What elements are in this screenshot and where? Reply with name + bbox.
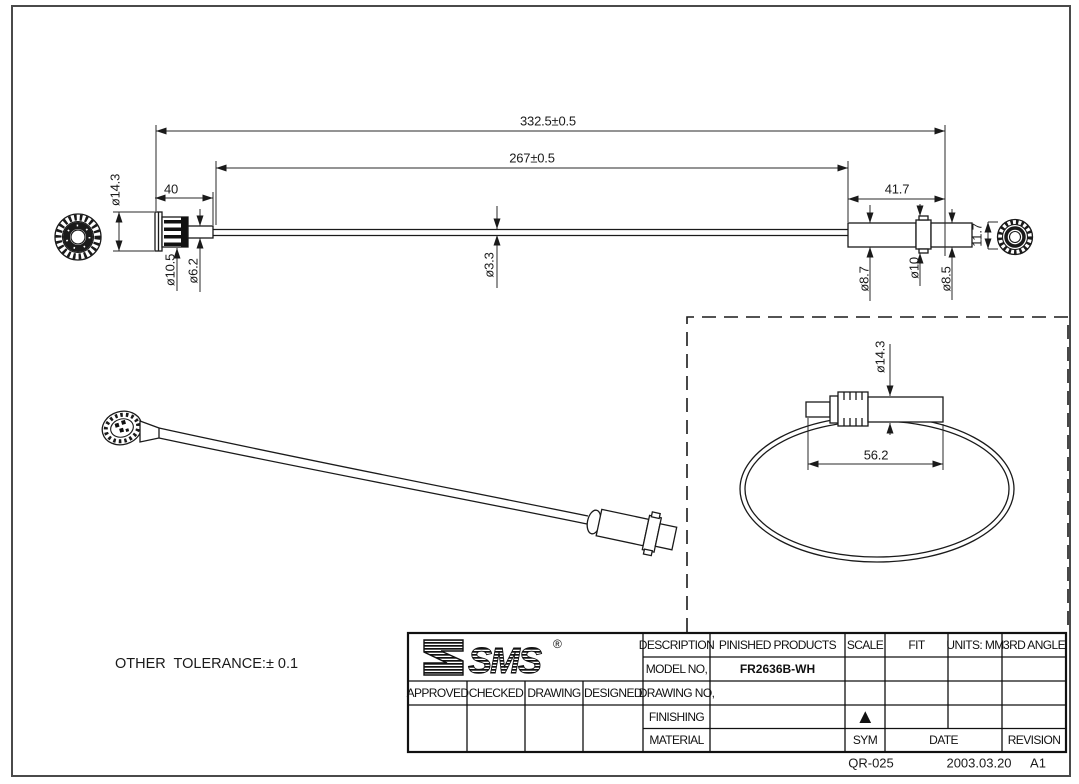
dim-left-barrel-dia: ø6.2 xyxy=(186,258,201,283)
iso-right-connector xyxy=(583,499,679,559)
tolerance-note: OTHER TOLERANCE:± 0.1 xyxy=(115,656,298,672)
cell-angle-label: 3RD ANGLE xyxy=(1002,633,1066,657)
dim-detail-flange-dia: ø14.3 xyxy=(873,341,888,373)
company-logo: SMS ® xyxy=(424,637,562,681)
footer-date: 2003.03.20 xyxy=(946,756,1011,771)
cell-approved-label: APPROVED xyxy=(408,681,467,705)
cell-finishing-label: FINISHING xyxy=(643,705,710,728)
cell-sym-label: SYM xyxy=(845,728,885,752)
dim-cable-dia: ø3.3 xyxy=(482,252,497,277)
cell-description-label: DESCRIPTION xyxy=(643,633,710,657)
cable-side-view xyxy=(213,230,848,236)
cell-material-label: MATERIAL xyxy=(643,728,710,752)
dim-left-connector-length: 40 xyxy=(164,182,178,197)
cell-drawing-no-label: DRAWING NO, xyxy=(643,681,710,705)
footer-revision: A1 xyxy=(1030,756,1046,771)
cable-loop-outer xyxy=(740,416,1014,562)
dim-left-flange-dia: ø14.3 xyxy=(108,174,123,206)
right-connector-end-view xyxy=(998,220,1033,255)
iso-cable-bottom xyxy=(159,438,587,524)
dim-right-barrel-dia: ø8.7 xyxy=(857,266,872,291)
cell-designed-label: DESIGNED xyxy=(583,681,643,705)
drawing-sheet: SMS ® 332.5±0.5 267±0.5 40 41.7 ø14.3 ø1… xyxy=(0,0,1079,784)
dim-right-end-height: 11.7 xyxy=(970,223,985,247)
iso-neck xyxy=(140,421,159,442)
cable-loop-inner xyxy=(745,421,1009,557)
cell-scale-label: SCALE xyxy=(845,633,885,657)
cell-sym-mark: ▲ xyxy=(845,705,885,728)
logo-text: SMS xyxy=(468,640,542,681)
cell-checked-label: CHECKED xyxy=(467,681,525,705)
cell-description-value: PINISHED PRODUCTS xyxy=(710,633,845,657)
cell-date-label: DATE xyxy=(885,728,1002,752)
cell-model-value: FR2636B-WH xyxy=(710,657,845,681)
footer-doc-no: QR-025 xyxy=(848,756,894,771)
logo-mark xyxy=(424,640,463,675)
isometric-view xyxy=(98,407,679,560)
dim-cable-length: 267±0.5 xyxy=(509,151,555,166)
top-view xyxy=(55,212,1033,260)
dim-detail-length: 56.2 xyxy=(864,448,889,463)
right-connector-side-view xyxy=(848,216,972,253)
dim-left-knurl-dia: ø10.5 xyxy=(163,254,178,286)
dim-right-collar-dia: ø10 xyxy=(907,257,922,279)
iso-left-connector xyxy=(98,407,146,450)
left-connector-end-view xyxy=(55,214,101,260)
dim-overall-length: 332.5±0.5 xyxy=(520,114,576,129)
iso-cable-top xyxy=(159,428,588,516)
cell-drawing-label: DRAWING xyxy=(525,681,583,705)
dim-right-connector-length: 41.7 xyxy=(885,182,910,197)
cell-model-label: MODEL NO, xyxy=(643,657,710,681)
cell-units-label: UNITS: MM xyxy=(948,633,1002,657)
left-connector-side-view xyxy=(155,212,213,251)
registered-mark: ® xyxy=(553,637,562,651)
dim-right-tip-dia: ø8.5 xyxy=(939,266,954,291)
cell-revision-label: REVISION xyxy=(1002,728,1066,752)
cell-fit-value: FIT xyxy=(885,633,948,657)
